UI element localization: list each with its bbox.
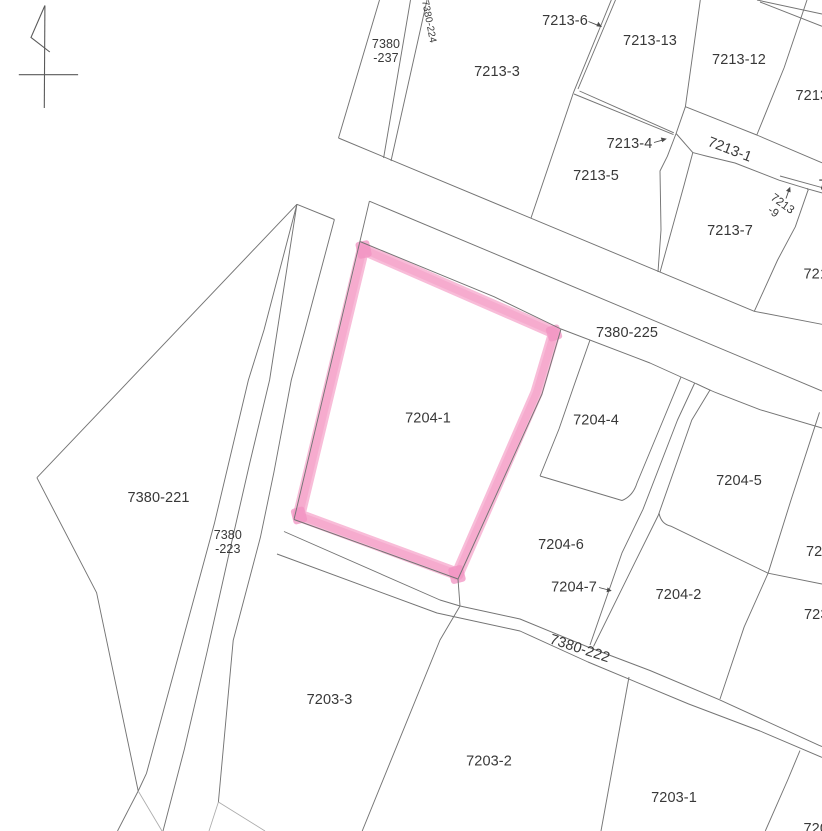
svg-text:7204-1: 7204-1 — [405, 411, 451, 427]
svg-text:7213-1: 7213-1 — [796, 88, 822, 104]
svg-text:7203-3: 7203-3 — [307, 692, 353, 708]
svg-text:7213-7: 7213-7 — [707, 223, 753, 239]
svg-text:7204-5: 7204-5 — [716, 473, 762, 489]
svg-text:7380: 7380 — [372, 37, 400, 51]
svg-text:7203: 7203 — [804, 821, 822, 831]
svg-text:7203-2: 7203-2 — [466, 754, 512, 770]
svg-text:7237: 7237 — [804, 607, 822, 623]
svg-text:72: 72 — [819, 178, 822, 194]
svg-text:7213-6: 7213-6 — [542, 13, 588, 29]
svg-text:7213-12: 7213-12 — [712, 52, 766, 68]
svg-text:-223: -223 — [215, 542, 240, 556]
svg-text:7380-221: 7380-221 — [127, 490, 189, 506]
svg-text:7204-7: 7204-7 — [551, 580, 597, 596]
svg-text:7213-5: 7213-5 — [573, 168, 619, 184]
svg-text:7380: 7380 — [214, 528, 242, 542]
svg-text:7204-6: 7204-6 — [538, 537, 584, 553]
svg-text:7213-4: 7213-4 — [607, 136, 653, 152]
svg-text:7380-225: 7380-225 — [596, 325, 658, 341]
svg-text:-237: -237 — [373, 51, 398, 65]
svg-text:7213-13: 7213-13 — [623, 33, 677, 49]
svg-text:7213: 7213 — [804, 267, 822, 283]
svg-text:7203-1: 7203-1 — [651, 790, 697, 806]
svg-text:7204-4: 7204-4 — [573, 413, 619, 429]
svg-text:7204-2: 7204-2 — [656, 587, 702, 603]
svg-text:7213-3: 7213-3 — [474, 64, 520, 80]
svg-text:720: 720 — [806, 544, 822, 560]
